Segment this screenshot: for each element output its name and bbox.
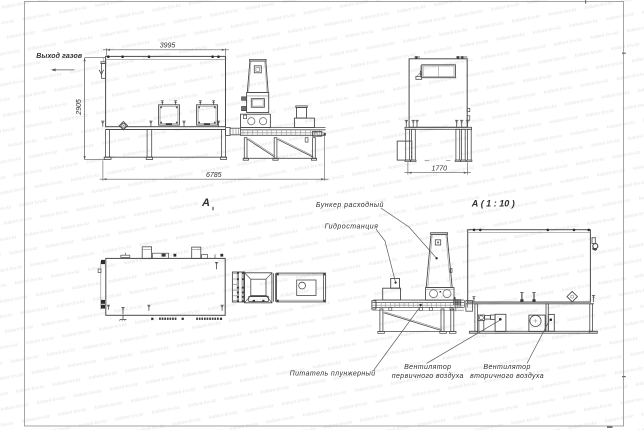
svg-text:6785: 6785 bbox=[206, 172, 222, 179]
svg-text:3995: 3995 bbox=[160, 43, 176, 50]
svg-text:1770: 1770 bbox=[432, 166, 448, 173]
svg-text:А ( 1 : 10 ): А ( 1 : 10 ) bbox=[471, 198, 515, 208]
svg-text:Бункер расходный: Бункер расходный bbox=[316, 201, 384, 209]
svg-text:Выход газов: Выход газов bbox=[36, 52, 83, 60]
svg-text:А: А bbox=[201, 197, 210, 209]
svg-text:Гидростанция: Гидростанция bbox=[325, 222, 379, 230]
svg-text:первичного воздуха: первичного воздуха bbox=[392, 372, 464, 380]
svg-text:Вентилятор: Вентилятор bbox=[404, 364, 451, 371]
svg-text:Вентилятор: Вентилятор bbox=[483, 364, 530, 371]
svg-text:вторичного воздуха: вторичного воздуха bbox=[470, 372, 544, 380]
svg-text:Питатель плунжерный: Питатель плунжерный bbox=[290, 370, 376, 378]
svg-text:2905: 2905 bbox=[76, 99, 83, 116]
